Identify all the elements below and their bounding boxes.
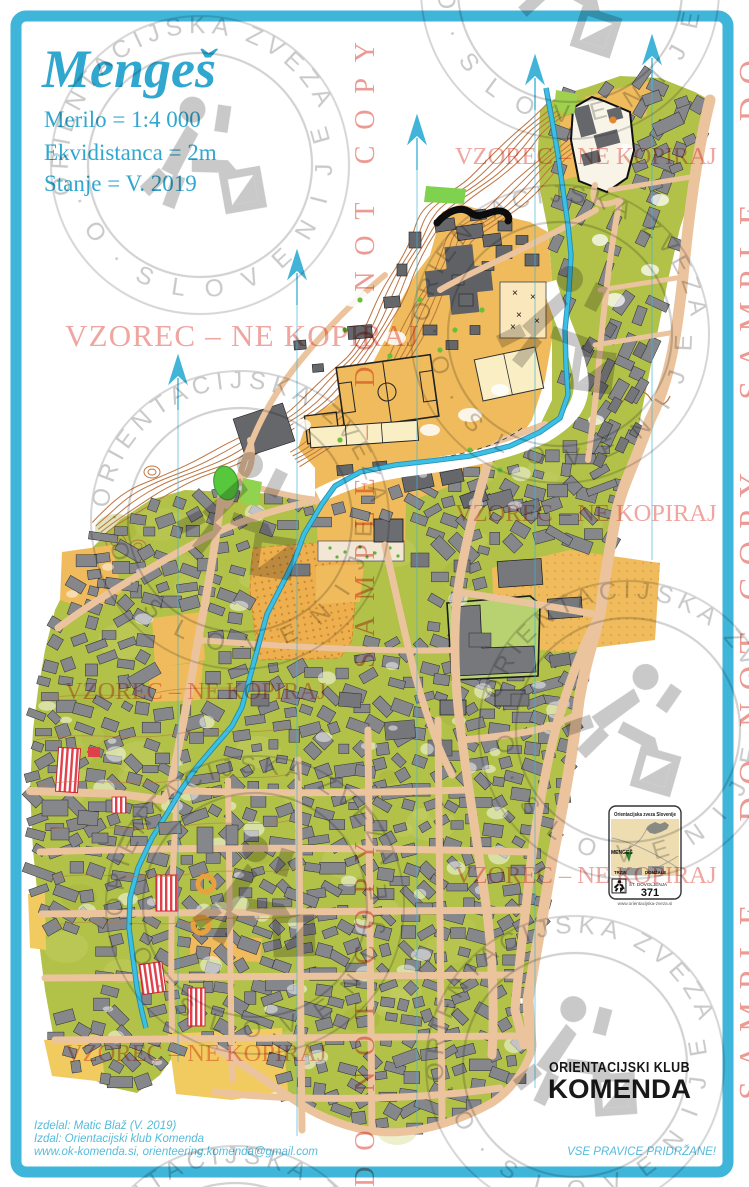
svg-text:Izdelal: Matic Blaž (V. 2019): Izdelal: Matic Blaž (V. 2019) [34, 1120, 176, 1132]
svg-text:VZOREC – NE KOPIRAJ: VZOREC – NE KOPIRAJ [455, 500, 718, 527]
svg-text:www.orientacijska-zveza.si: www.orientacijska-zveza.si [618, 901, 673, 906]
svg-text:×: × [516, 310, 522, 321]
svg-text:VZOREC – NE KOPIRAJ: VZOREC – NE KOPIRAJ [65, 678, 328, 705]
svg-text:VZOREC – NE KOPIRAJ: VZOREC – NE KOPIRAJ [65, 1040, 328, 1067]
svg-text:SAMPLE – DO NOT COPY SAMPLE: SAMPLE – DO NOT COPY SAMPLE – DO [733, 60, 749, 1100]
svg-text:VZOREC – NE KOPIRAJ: VZOREC – NE KOPIRAJ [455, 143, 718, 170]
svg-text:×: × [512, 288, 518, 299]
svg-text:Izdal: Orientacijski klub Kome: Izdal: Orientacijski klub Komenda [34, 1133, 204, 1145]
svg-text:VZOREC – NE KOPIRAJ: VZOREC – NE KOPIRAJ [455, 862, 718, 889]
svg-text:Orientacijska zveza Slovenije: Orientacijska zveza Slovenije [614, 812, 676, 818]
svg-text:SAMPLE – DO NOT COPY: SAMPLE – DO NOT COPY [350, 842, 381, 1187]
